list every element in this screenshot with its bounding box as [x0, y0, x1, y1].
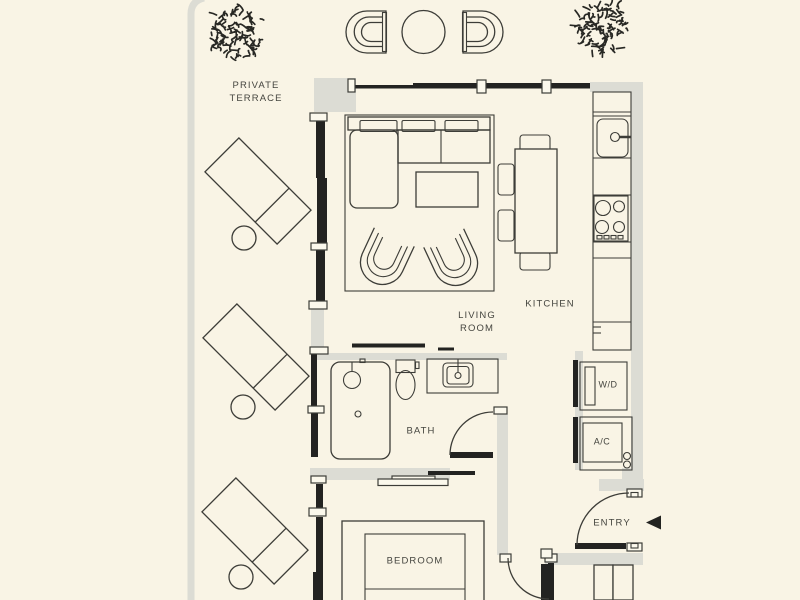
label-entry: ENTRY: [593, 517, 631, 530]
label-private-terrace: PRIVATETERRACE: [229, 79, 282, 105]
tree-icon: [210, 4, 264, 60]
terrace-boundary-line: [191, 0, 204, 600]
sofa: [348, 117, 490, 208]
entry-door-leaf: [575, 543, 626, 549]
armchair: [424, 229, 485, 293]
bathtub-shower: [331, 359, 390, 459]
side-table: [229, 565, 253, 589]
lounge-chair: [202, 478, 308, 584]
side-table: [231, 395, 255, 419]
dining-set: [498, 135, 557, 270]
bedroom-pocket-door-track: [428, 471, 475, 475]
label-wd: W/D: [599, 379, 618, 392]
label-living-room: LIVINGROOM: [458, 309, 496, 335]
terrace-table: [402, 11, 445, 54]
dining-table: [515, 149, 557, 253]
tree-icon: [570, 0, 627, 57]
coffee-table: [416, 172, 478, 207]
toilet: [396, 360, 419, 400]
kitchen-sink: [597, 119, 631, 157]
label-kitchen: KITCHEN: [525, 298, 574, 311]
kitchen-counter: [593, 92, 631, 350]
terrace-dining-set: [346, 11, 503, 54]
floor-plan: PRIVATETERRACE LIVINGROOM KITCHEN BATH B…: [0, 0, 800, 600]
bathroom-vanity: [427, 359, 498, 393]
bath-pocket-door-track: [352, 344, 425, 348]
entry-direction-arrow: [646, 516, 661, 530]
label-ac: A/C: [594, 436, 611, 449]
lounge-chair: [205, 138, 311, 244]
armchair: [353, 228, 414, 292]
label-bedroom: BEDROOM: [387, 555, 444, 568]
side-table: [232, 226, 256, 250]
label-bath: BATH: [406, 425, 435, 438]
entry-closet: [594, 565, 633, 600]
bath-door-leaf: [450, 452, 493, 458]
bath-door-swing: [450, 412, 493, 455]
floor-plan-drawing: [0, 0, 800, 600]
lounge-chair: [203, 304, 309, 410]
cooktop: [594, 196, 628, 241]
walls-dark: [311, 83, 626, 600]
